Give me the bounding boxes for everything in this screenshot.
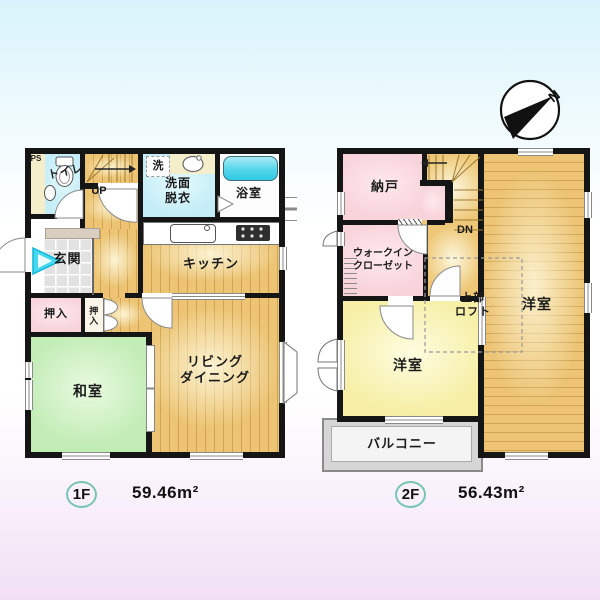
- door-arc-toilet: [55, 190, 83, 218]
- label-up: UP: [84, 185, 114, 199]
- label-bedroom-right: 洋室: [508, 296, 566, 314]
- label-ps: PS: [30, 155, 42, 164]
- stove-burners: [241, 227, 262, 237]
- floor1-area: 59.46m²: [132, 483, 199, 503]
- bay-window: [284, 342, 297, 403]
- label-living-dining: リビング ダイニング: [167, 354, 263, 387]
- label-living-line1: リビング: [167, 354, 263, 370]
- label-washitsu: 和室: [58, 383, 118, 401]
- label-washroom: 洗面 脱衣: [150, 176, 206, 206]
- floor2-area: 56.43m²: [458, 483, 525, 503]
- casement-window-icon: [318, 339, 337, 362]
- casement-window-icon: [318, 368, 337, 391]
- faucet-icon: [205, 226, 210, 231]
- label-loft: 上部 ロフト: [452, 292, 494, 320]
- door-arc-entrance: [0, 238, 25, 272]
- label-living-line2: ダイニング: [167, 370, 263, 386]
- floor2-badge: 2F: [395, 481, 426, 508]
- door-arc-bedroom-left: [380, 306, 413, 339]
- label-dn: DN: [448, 224, 482, 238]
- label-wic: ウォークイン クローゼット: [350, 248, 416, 273]
- label-bedroom-left: 洋室: [380, 357, 436, 375]
- label-loft-line2: ロフト: [452, 306, 494, 320]
- label-oshiire-small: 押入: [87, 301, 98, 331]
- washbasin-icon: [183, 156, 203, 172]
- label-kitchen: キッチン: [168, 256, 254, 272]
- label-balcony: バルコニー: [350, 436, 454, 452]
- compass-north-icon: N: [501, 81, 563, 139]
- label-bath: 浴室: [224, 186, 274, 201]
- label-genkan: 玄関: [45, 251, 90, 267]
- bifold-closet-door: [104, 299, 118, 315]
- label-washer: 洗: [146, 156, 170, 177]
- floorplan-canvas: N PS トイレ UP 洗 洗面 脱衣 浴室 キッチン 玄関 押入 押入 和室 …: [0, 0, 600, 600]
- label-oshiire-main: 押入: [32, 308, 80, 322]
- stairs-up-arrow: [95, 165, 136, 173]
- casement-window-icon: [323, 231, 337, 246]
- door-arc-living: [142, 298, 172, 328]
- label-wic-line1: ウォークイン: [350, 248, 416, 261]
- label-nando: 納戸: [355, 179, 415, 195]
- bifold-closet-door: [104, 315, 118, 331]
- label-washroom-line2: 脱衣: [150, 191, 206, 206]
- floor1-badge: 1F: [66, 481, 97, 508]
- label-wic-line2: クローゼット: [350, 261, 416, 274]
- label-washroom-line1: 洗面: [150, 176, 206, 191]
- label-loft-line1: 上部: [452, 292, 494, 306]
